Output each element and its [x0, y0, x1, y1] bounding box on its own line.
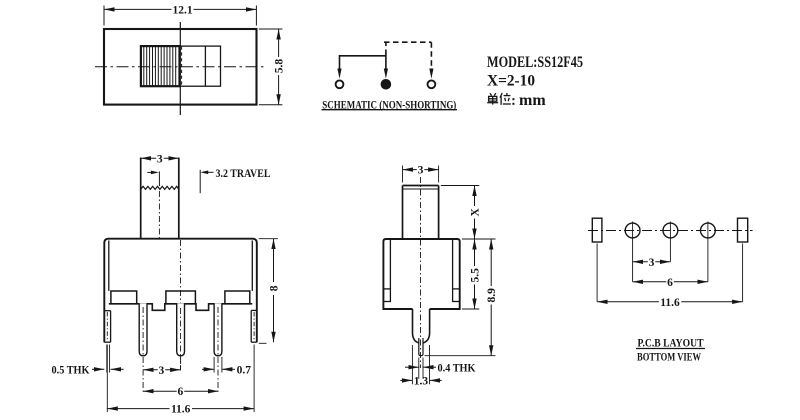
- svg-text:X: X: [470, 207, 482, 216]
- svg-text:11.6: 11.6: [171, 404, 191, 416]
- svg-text:8.9: 8.9: [486, 288, 498, 303]
- svg-text:P.C.B LAYOUT: P.C.B LAYOUT: [638, 338, 704, 350]
- svg-text:11.6: 11.6: [660, 297, 680, 309]
- svg-text:3.2 TRAVEL: 3.2 TRAVEL: [216, 168, 271, 180]
- svg-text:0.5 THK: 0.5 THK: [52, 364, 90, 376]
- svg-text:6: 6: [178, 386, 184, 398]
- svg-text:0.4 THK: 0.4 THK: [438, 362, 476, 374]
- svg-text:5.5: 5.5: [469, 268, 481, 283]
- svg-text:BOTTOM VIEW: BOTTOM VIEW: [637, 352, 701, 364]
- svg-text:1.3: 1.3: [414, 375, 429, 387]
- svg-text:3: 3: [418, 165, 424, 177]
- svg-text:X=2-10: X=2-10: [487, 73, 535, 90]
- svg-text:MODEL:SS12F45: MODEL:SS12F45: [487, 54, 583, 71]
- svg-text:3: 3: [649, 257, 655, 269]
- svg-text:6: 6: [667, 277, 673, 289]
- svg-text:mm: mm: [519, 92, 546, 109]
- svg-text:3: 3: [159, 365, 165, 377]
- svg-text:12.1: 12.1: [172, 5, 192, 17]
- svg-text:3: 3: [157, 153, 163, 165]
- svg-text:0.7: 0.7: [237, 364, 252, 376]
- svg-text:8: 8: [269, 285, 281, 291]
- svg-text:5.8: 5.8: [274, 59, 286, 74]
